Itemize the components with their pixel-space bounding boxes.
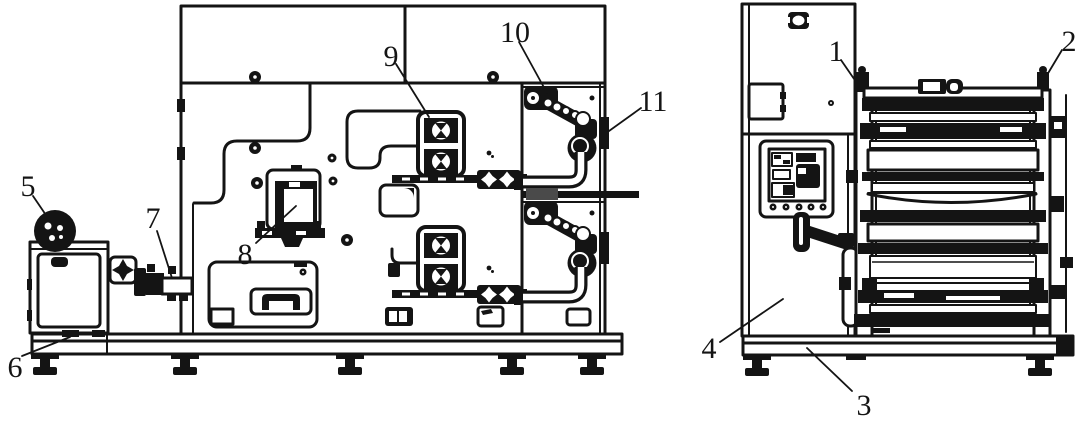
control-panel xyxy=(760,141,833,217)
guide-block xyxy=(388,263,400,277)
diagram-canvas: 1 2 3 4 5 6 7 8 9 10 11 xyxy=(0,0,1080,423)
web-sag-curve xyxy=(868,194,1036,203)
callout-9-label: 9 xyxy=(384,40,399,73)
handwheel xyxy=(34,210,76,252)
top-bracket xyxy=(918,79,963,94)
callout-7-label: 7 xyxy=(146,202,161,235)
callout-3-label: 3 xyxy=(857,389,872,422)
unwinder-unit xyxy=(27,210,192,337)
left-machine-view xyxy=(27,6,639,375)
right-machine-view xyxy=(742,4,1074,376)
callout-2-label: 2 xyxy=(1062,25,1077,58)
callout-10-label: 10 xyxy=(500,16,530,49)
callout-7-leader xyxy=(157,231,172,278)
callout-1-label: 1 xyxy=(829,35,844,68)
callout-8-label: 8 xyxy=(238,238,253,271)
vent-knob-icon xyxy=(787,12,810,29)
roller-stack xyxy=(839,66,1073,336)
bracket-plate xyxy=(380,185,418,216)
callout-5-label: 5 xyxy=(21,170,36,203)
callout-6-label: 6 xyxy=(8,351,23,384)
machine-diagram: 1 2 3 4 5 6 7 8 9 10 11 xyxy=(0,0,1080,423)
callout-2-leader xyxy=(1044,50,1062,80)
coupling-housing xyxy=(162,278,192,294)
left-base-frame xyxy=(31,334,622,375)
drawer-panel xyxy=(209,261,317,327)
right-base-frame xyxy=(743,336,1074,376)
access-door xyxy=(749,84,786,119)
display-segment xyxy=(772,153,792,166)
callout-11-leader xyxy=(609,108,641,131)
callout-11-label: 11 xyxy=(639,85,668,118)
callout-4-label: 4 xyxy=(702,332,717,365)
